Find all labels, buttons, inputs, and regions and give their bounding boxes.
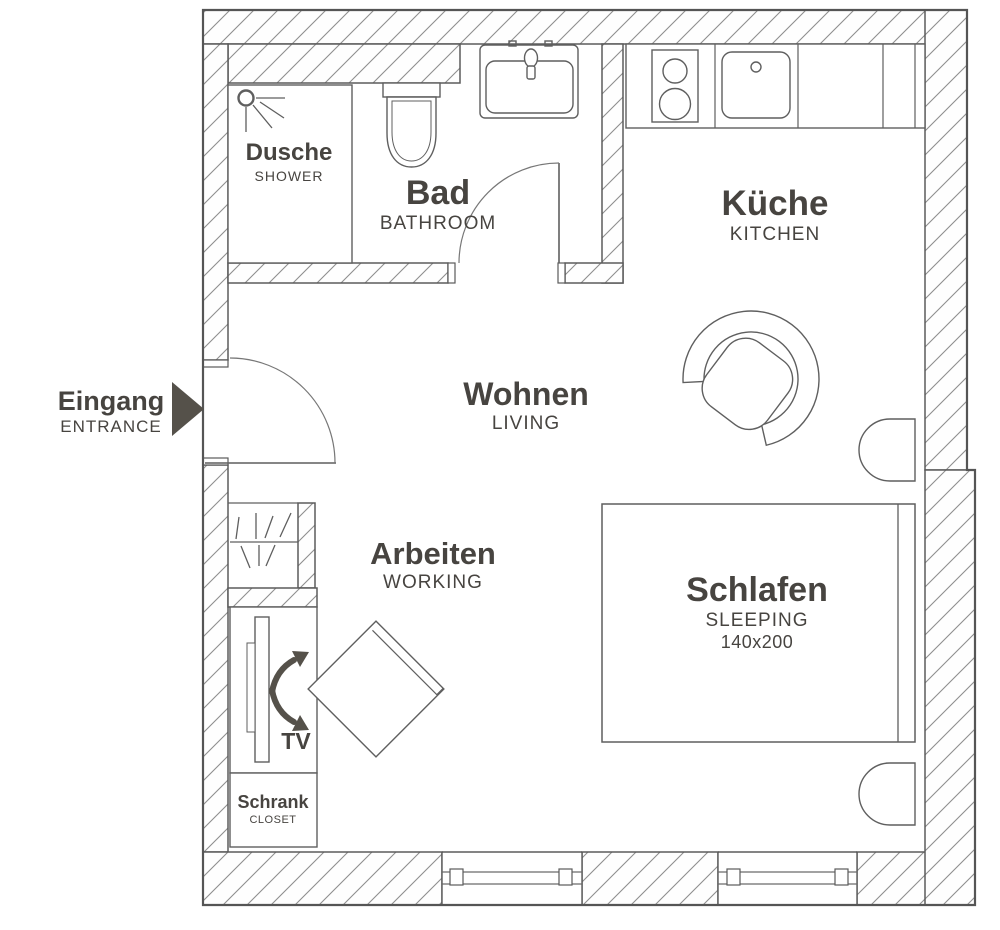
room-name-en: KITCHEN — [722, 225, 829, 245]
room-name-en: LIVING — [463, 414, 589, 434]
closet-name: Schrank — [237, 793, 308, 812]
bed-size: 140x200 — [686, 633, 828, 652]
entrance-door — [205, 358, 336, 463]
room-name: Dusche — [246, 141, 333, 166]
entrance-name: Eingang — [58, 387, 165, 415]
room-name-en: SHOWER — [246, 169, 333, 184]
room-label-schlafen: Schlafen SLEEPING 140x200 — [686, 573, 828, 652]
armchair-icon — [669, 284, 846, 457]
room-name-en: SLEEPING — [686, 611, 828, 631]
tv-label: TV — [281, 730, 310, 754]
wall-niche-pillar — [298, 503, 315, 588]
tv-icon — [255, 617, 269, 762]
radiator-bedroom-icon — [859, 763, 915, 825]
entrance-name-en: ENTRANCE — [58, 418, 165, 436]
floor-plan-drawing — [0, 0, 1000, 930]
entrance-arrow-icon — [172, 382, 204, 436]
room-name: Wohnen — [463, 378, 589, 411]
wall-top — [203, 10, 967, 44]
wall-bath-alcove — [228, 44, 460, 83]
wall-right-upper — [925, 10, 967, 470]
room-name: Schlafen — [686, 573, 828, 608]
kitchen-counter — [626, 44, 925, 128]
wall-bottom-left — [203, 852, 442, 905]
floor-plan: Dusche SHOWER Bad BATHROOM Küche KITCHEN… — [0, 0, 1000, 930]
wall-bath-bottom-left — [228, 263, 448, 283]
room-name-en: BATHROOM — [380, 214, 496, 234]
room-name: Küche — [722, 186, 829, 222]
closet-label: Schrank CLOSET — [237, 793, 308, 826]
window-2 — [718, 852, 857, 905]
window-1 — [442, 852, 582, 905]
room-label-arbeiten: Arbeiten WORKING — [370, 538, 496, 593]
desk-chair-icon — [308, 621, 444, 757]
entrance-label: Eingang ENTRANCE — [58, 387, 165, 436]
room-label-wohnen: Wohnen LIVING — [463, 378, 589, 434]
wall-bath-kitchen — [602, 44, 623, 283]
wall-bath-bottom-right — [565, 263, 623, 283]
room-name: Arbeiten — [370, 538, 496, 570]
room-label-bad: Bad BATHROOM — [380, 176, 496, 234]
wall-left-upper — [203, 44, 228, 360]
coat-rack-icon — [228, 503, 298, 568]
door-jambs — [203, 263, 565, 465]
bathroom-sink-icon — [480, 41, 578, 118]
toilet-icon — [383, 83, 440, 167]
wall-niche-bottom — [228, 588, 317, 607]
wall-right-lower — [925, 470, 975, 905]
room-label-kueche: Küche KITCHEN — [722, 186, 829, 245]
room-label-dusche: Dusche SHOWER — [246, 141, 333, 184]
room-name: Bad — [380, 176, 496, 211]
closet-name-en: CLOSET — [237, 815, 308, 826]
radiator-living-icon — [859, 419, 915, 481]
wall-left-lower — [203, 465, 228, 852]
room-name-en: WORKING — [370, 573, 496, 593]
wall-bottom-middle — [582, 852, 718, 905]
